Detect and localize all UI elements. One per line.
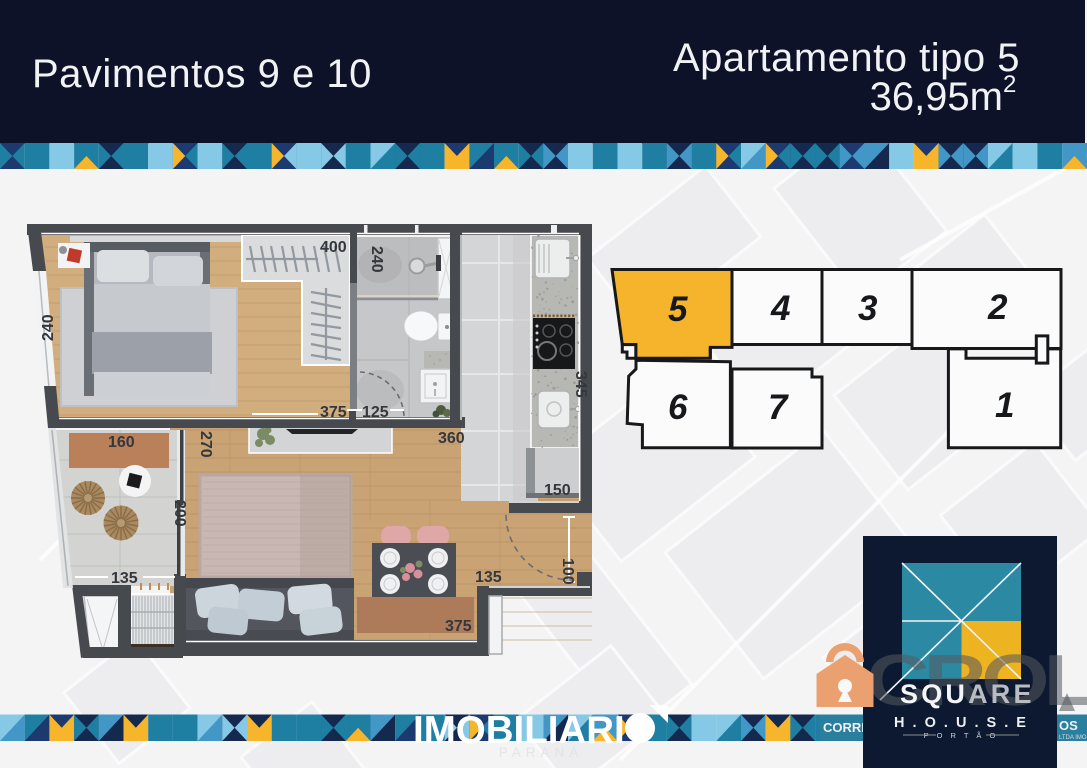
svg-text:4: 4 xyxy=(770,289,790,328)
svg-text:135: 135 xyxy=(475,569,502,586)
svg-text:200: 200 xyxy=(171,500,188,527)
svg-text:7: 7 xyxy=(768,388,789,427)
svg-text:240: 240 xyxy=(368,246,385,273)
svg-text:360: 360 xyxy=(438,430,465,447)
svg-text:150: 150 xyxy=(544,482,571,499)
svg-text:36,95m: 36,95m xyxy=(870,75,1003,119)
svg-text:345: 345 xyxy=(572,371,589,398)
svg-text:H . O . U . S . E: H . O . U . S . E xyxy=(894,715,1028,731)
svg-text:375: 375 xyxy=(320,404,347,421)
svg-text:SQUARE: SQUARE xyxy=(900,679,1035,709)
svg-text:Pavimentos 9 e 10: Pavimentos 9 e 10 xyxy=(32,52,372,96)
svg-text:Apartamento tipo 5: Apartamento tipo 5 xyxy=(673,36,1020,80)
svg-text:3: 3 xyxy=(858,289,878,328)
svg-text:2: 2 xyxy=(987,288,1008,327)
svg-text:1: 1 xyxy=(995,386,1014,425)
svg-text:240: 240 xyxy=(40,314,57,341)
svg-text:375: 375 xyxy=(445,618,472,635)
svg-text:135: 135 xyxy=(111,570,138,587)
svg-text:2: 2 xyxy=(1003,71,1016,98)
svg-text:270: 270 xyxy=(197,431,214,458)
svg-text:6: 6 xyxy=(668,388,688,427)
svg-text:PARANÁ: PARANÁ xyxy=(499,745,584,760)
svg-text:160: 160 xyxy=(108,434,135,451)
svg-text:400: 400 xyxy=(320,239,347,256)
svg-text:100: 100 xyxy=(559,558,576,585)
svg-text:125: 125 xyxy=(362,404,389,421)
svg-text:5: 5 xyxy=(668,290,688,329)
svg-text:LTDA IMOB: LTDA IMOB xyxy=(1059,735,1087,741)
